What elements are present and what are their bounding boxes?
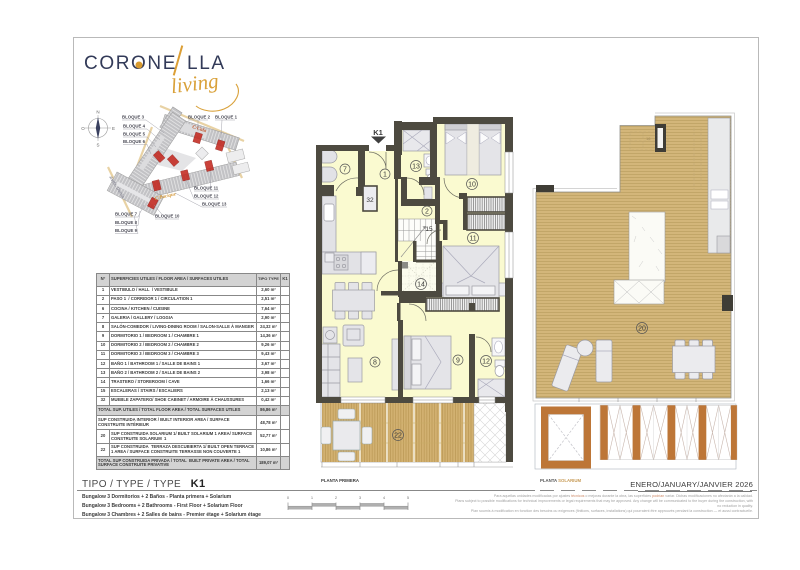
svg-text:9: 9 xyxy=(456,358,460,365)
svg-text:11: 11 xyxy=(469,236,476,243)
svg-text:12: 12 xyxy=(482,359,490,366)
svg-text:16: 16 xyxy=(646,136,651,141)
svg-text:2: 2 xyxy=(425,209,429,216)
svg-text:20: 20 xyxy=(638,326,646,333)
svg-text:7: 7 xyxy=(343,167,347,174)
svg-text:14: 14 xyxy=(417,282,425,289)
svg-text:13: 13 xyxy=(412,164,420,171)
svg-text:32: 32 xyxy=(366,197,374,204)
svg-text:1: 1 xyxy=(383,172,387,179)
svg-text:22: 22 xyxy=(394,433,402,440)
svg-text:10: 10 xyxy=(468,182,476,189)
svg-text:15: 15 xyxy=(425,226,433,233)
svg-text:K1: K1 xyxy=(373,128,383,137)
svg-text:8: 8 xyxy=(373,360,377,367)
